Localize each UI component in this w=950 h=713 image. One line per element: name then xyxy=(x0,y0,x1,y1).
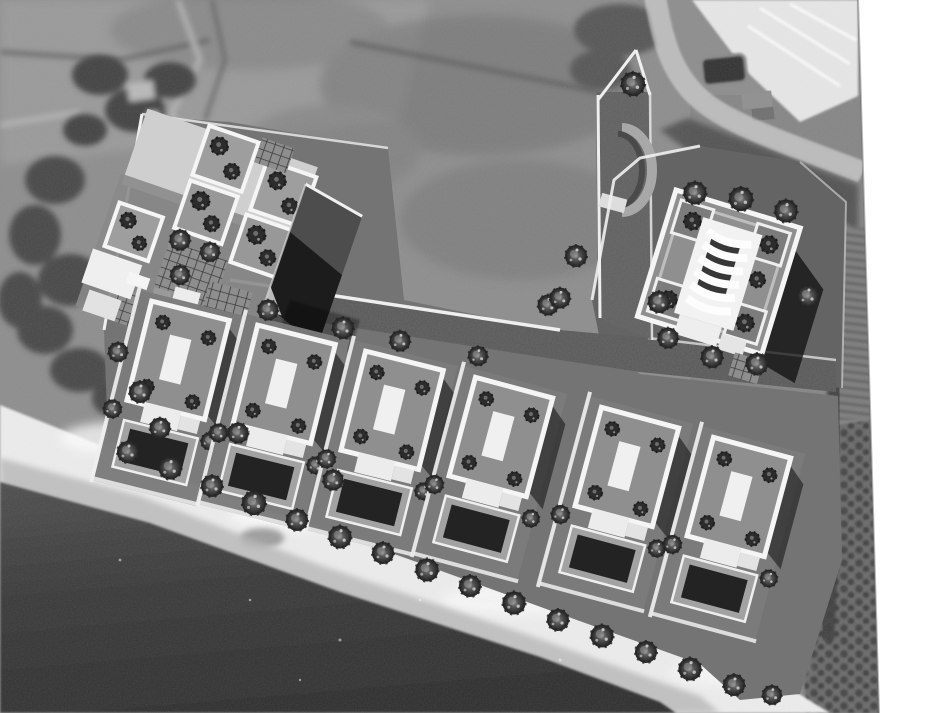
tree xyxy=(323,470,344,491)
tree xyxy=(328,525,351,548)
tree xyxy=(658,328,679,349)
tree xyxy=(502,591,525,614)
tree xyxy=(550,288,571,309)
tree xyxy=(415,558,438,581)
tree xyxy=(762,685,782,705)
tree xyxy=(201,475,223,497)
tree xyxy=(590,624,613,647)
tree xyxy=(701,346,723,368)
tree xyxy=(468,346,488,366)
tree xyxy=(621,72,645,96)
tree xyxy=(459,575,481,597)
tree xyxy=(547,609,569,631)
tree xyxy=(150,418,171,439)
tree xyxy=(565,245,587,267)
tree xyxy=(746,353,768,375)
tree xyxy=(683,181,706,204)
tree xyxy=(170,265,190,285)
tree xyxy=(158,456,181,479)
tree xyxy=(228,423,249,444)
tree xyxy=(774,199,797,222)
tree xyxy=(332,317,354,339)
scene xyxy=(0,0,950,713)
tree xyxy=(390,331,411,352)
tree xyxy=(723,674,745,696)
tree xyxy=(129,381,151,403)
tree xyxy=(648,291,670,313)
tree xyxy=(797,285,819,307)
tree xyxy=(108,342,128,362)
tree xyxy=(242,491,266,515)
tree xyxy=(635,641,657,663)
tree xyxy=(729,187,753,211)
tree xyxy=(170,230,191,251)
aerial-masterplan-image xyxy=(0,0,950,713)
tree xyxy=(286,509,308,531)
tree xyxy=(200,242,220,262)
tree xyxy=(258,300,279,321)
tree xyxy=(117,441,139,463)
tree xyxy=(678,657,701,680)
tree xyxy=(372,542,394,564)
